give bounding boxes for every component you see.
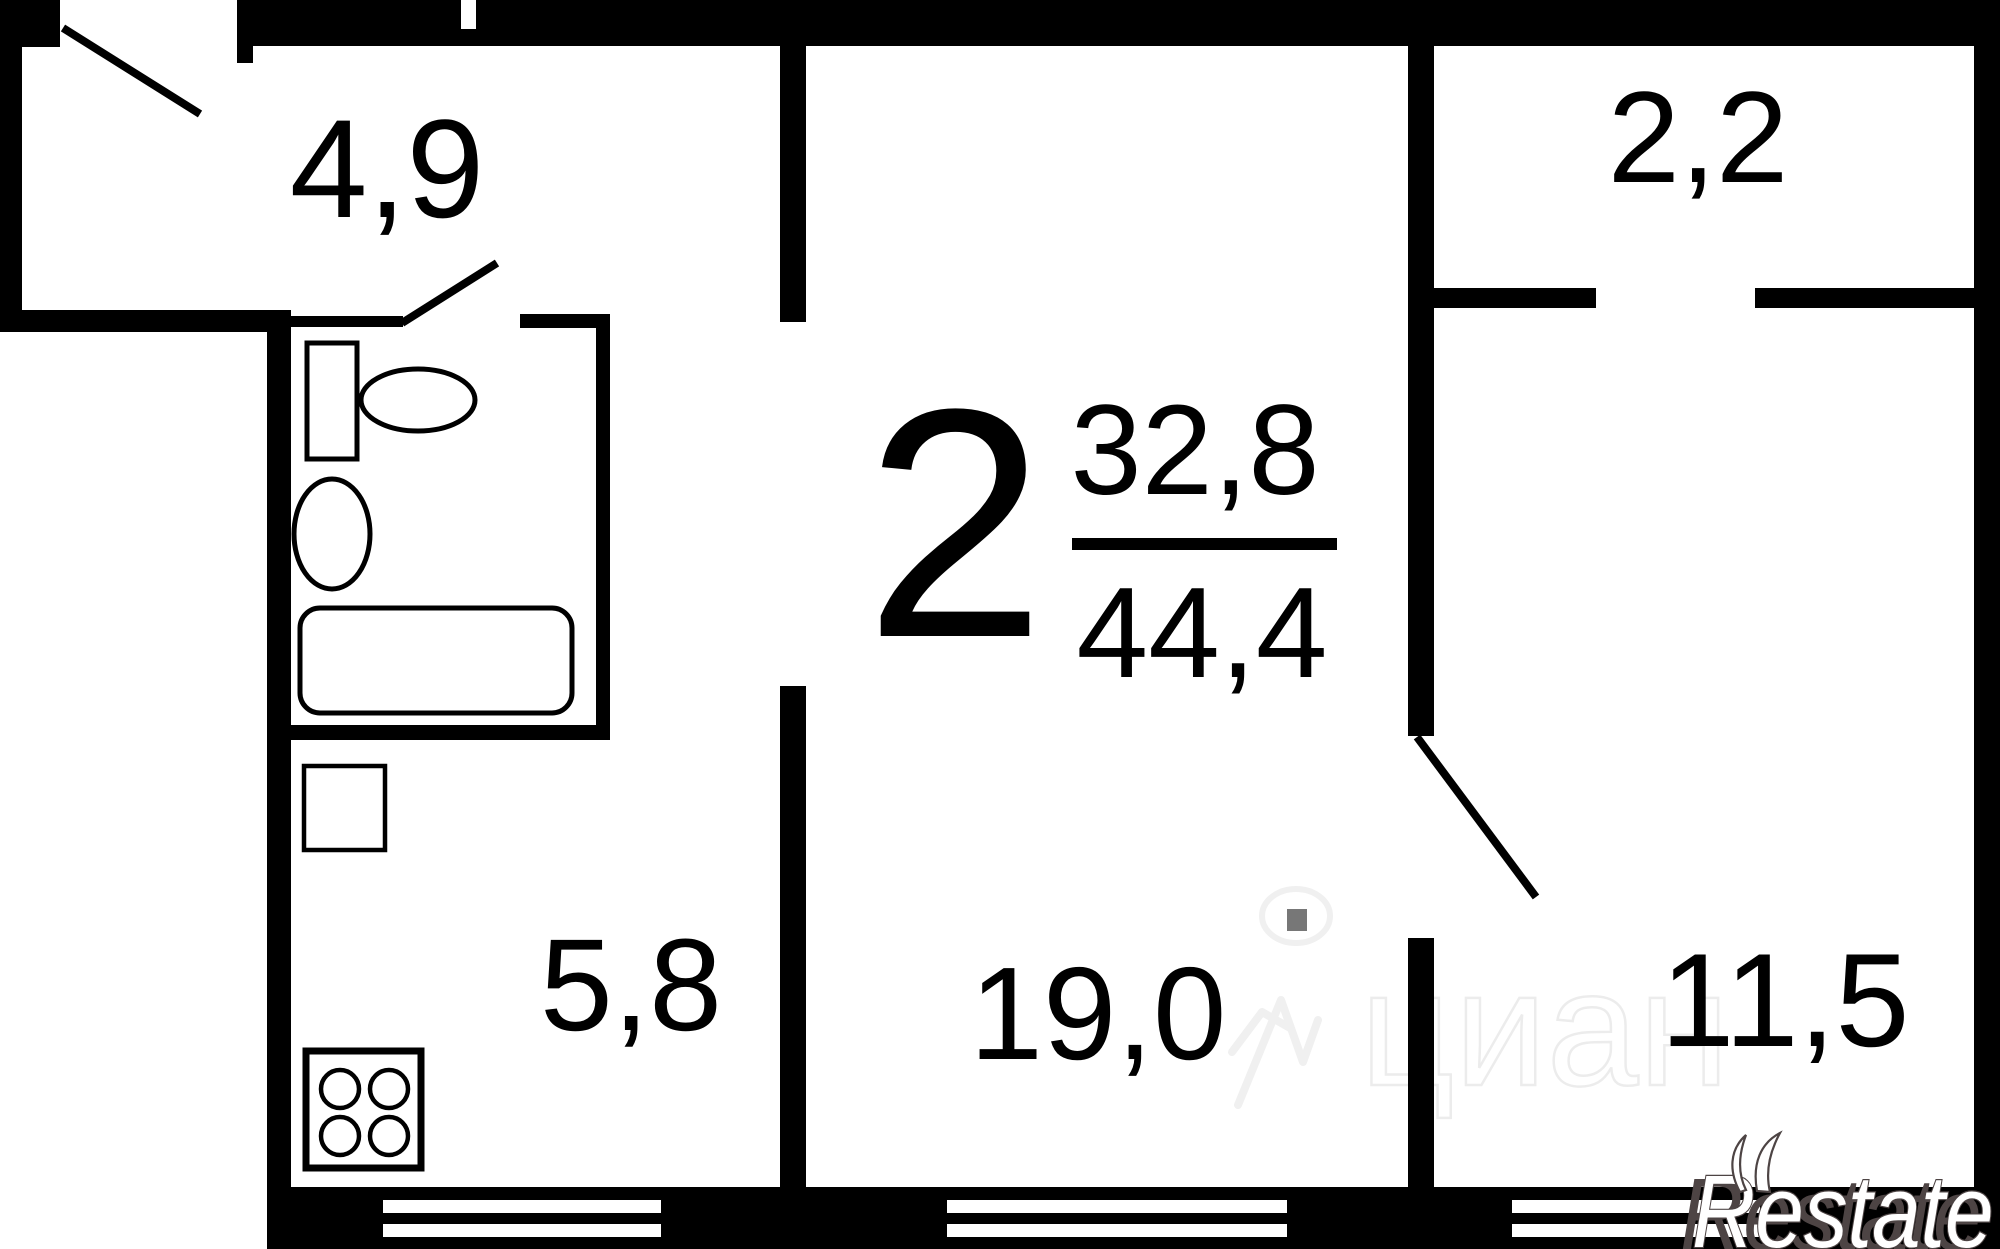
svg-text:19,0: 19,0	[970, 940, 1227, 1087]
svg-text:44,4: 44,4	[1076, 561, 1327, 705]
svg-text:32,8: 32,8	[1070, 379, 1319, 522]
svg-text:5,8: 5,8	[540, 911, 722, 1058]
svg-text:2: 2	[864, 342, 1045, 706]
svg-text:11,5: 11,5	[1661, 927, 1910, 1075]
svg-text:2,2: 2,2	[1608, 64, 1789, 210]
svg-text:4,9: 4,9	[290, 90, 485, 247]
